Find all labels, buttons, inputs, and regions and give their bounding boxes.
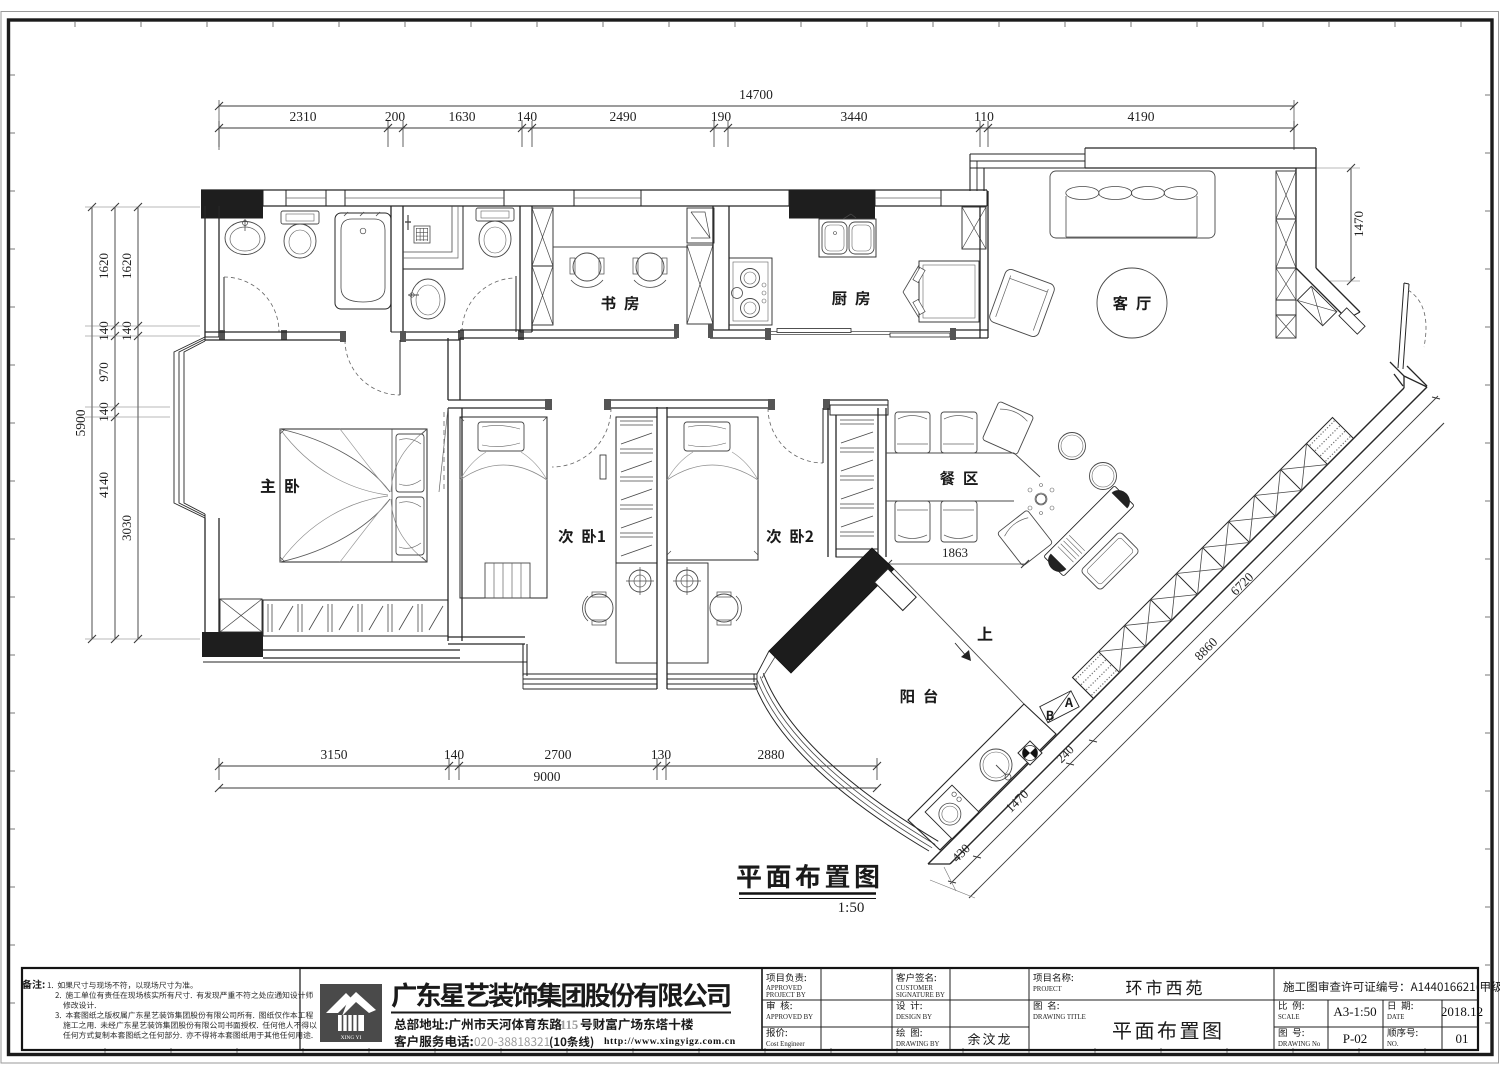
svg-text:1:50: 1:50	[838, 900, 865, 916]
svg-text:XING YI: XING YI	[341, 1035, 362, 1041]
svg-text:140: 140	[119, 321, 134, 341]
svg-text:Cost Engineer: Cost Engineer	[766, 1041, 805, 1048]
svg-text:1630: 1630	[449, 109, 476, 124]
svg-text:SIGNATURE BY: SIGNATURE BY	[896, 992, 945, 999]
svg-text:115: 115	[560, 1018, 578, 1032]
svg-text:130: 130	[651, 747, 672, 762]
svg-text:3150: 3150	[321, 747, 348, 762]
svg-text:http://www.xingyigz.com.cn: http://www.xingyigz.com.cn	[604, 1036, 736, 1047]
svg-text:NO.: NO.	[1387, 1041, 1399, 1048]
svg-text:SCALE: SCALE	[1278, 1014, 1300, 1021]
svg-text:2310: 2310	[290, 109, 317, 124]
svg-text:4140: 4140	[96, 472, 111, 498]
svg-text:DRAWING TITLE: DRAWING TITLE	[1033, 1014, 1086, 1021]
svg-text:DRAWING BY: DRAWING BY	[896, 1041, 940, 1048]
svg-text:9000: 9000	[534, 769, 561, 784]
svg-text:DATE: DATE	[1387, 1014, 1404, 1021]
svg-text:1620: 1620	[96, 253, 111, 279]
svg-text:140: 140	[517, 109, 538, 124]
svg-text:4190: 4190	[1128, 109, 1155, 124]
svg-text:14700: 14700	[739, 87, 773, 102]
svg-text:3030: 3030	[119, 515, 134, 541]
svg-text:2880: 2880	[758, 747, 785, 762]
svg-text:1470: 1470	[1351, 211, 1366, 237]
svg-text:140: 140	[96, 402, 111, 422]
svg-text:1863: 1863	[942, 545, 968, 560]
svg-text:200: 200	[385, 109, 406, 124]
svg-text:DRAWING No: DRAWING No	[1278, 1041, 1321, 1048]
svg-text:1620: 1620	[119, 253, 134, 279]
svg-text:140: 140	[96, 321, 111, 341]
svg-text:2700: 2700	[545, 747, 572, 762]
svg-text:P-02: P-02	[1343, 1031, 1368, 1046]
svg-text:APPROVED BY: APPROVED BY	[766, 1014, 813, 1021]
svg-text:110: 110	[974, 109, 994, 124]
svg-text:PROJECT: PROJECT	[1033, 986, 1063, 993]
svg-text:190: 190	[711, 109, 732, 124]
svg-text:CUSTOMER: CUSTOMER	[896, 985, 933, 992]
svg-text:2490: 2490	[610, 109, 637, 124]
svg-text:APPROVED: APPROVED	[766, 985, 802, 992]
svg-text:DESIGN BY: DESIGN BY	[896, 1014, 932, 1021]
svg-text:PROJECT BY: PROJECT BY	[766, 992, 806, 999]
svg-text:5900: 5900	[73, 409, 88, 436]
svg-text:2018.12: 2018.12	[1441, 1004, 1483, 1019]
svg-text:01: 01	[1456, 1031, 1469, 1046]
svg-text:970: 970	[96, 362, 111, 382]
svg-text:A3-1:50: A3-1:50	[1333, 1004, 1376, 1019]
svg-text:3440: 3440	[841, 109, 868, 124]
svg-text:140: 140	[444, 747, 465, 762]
